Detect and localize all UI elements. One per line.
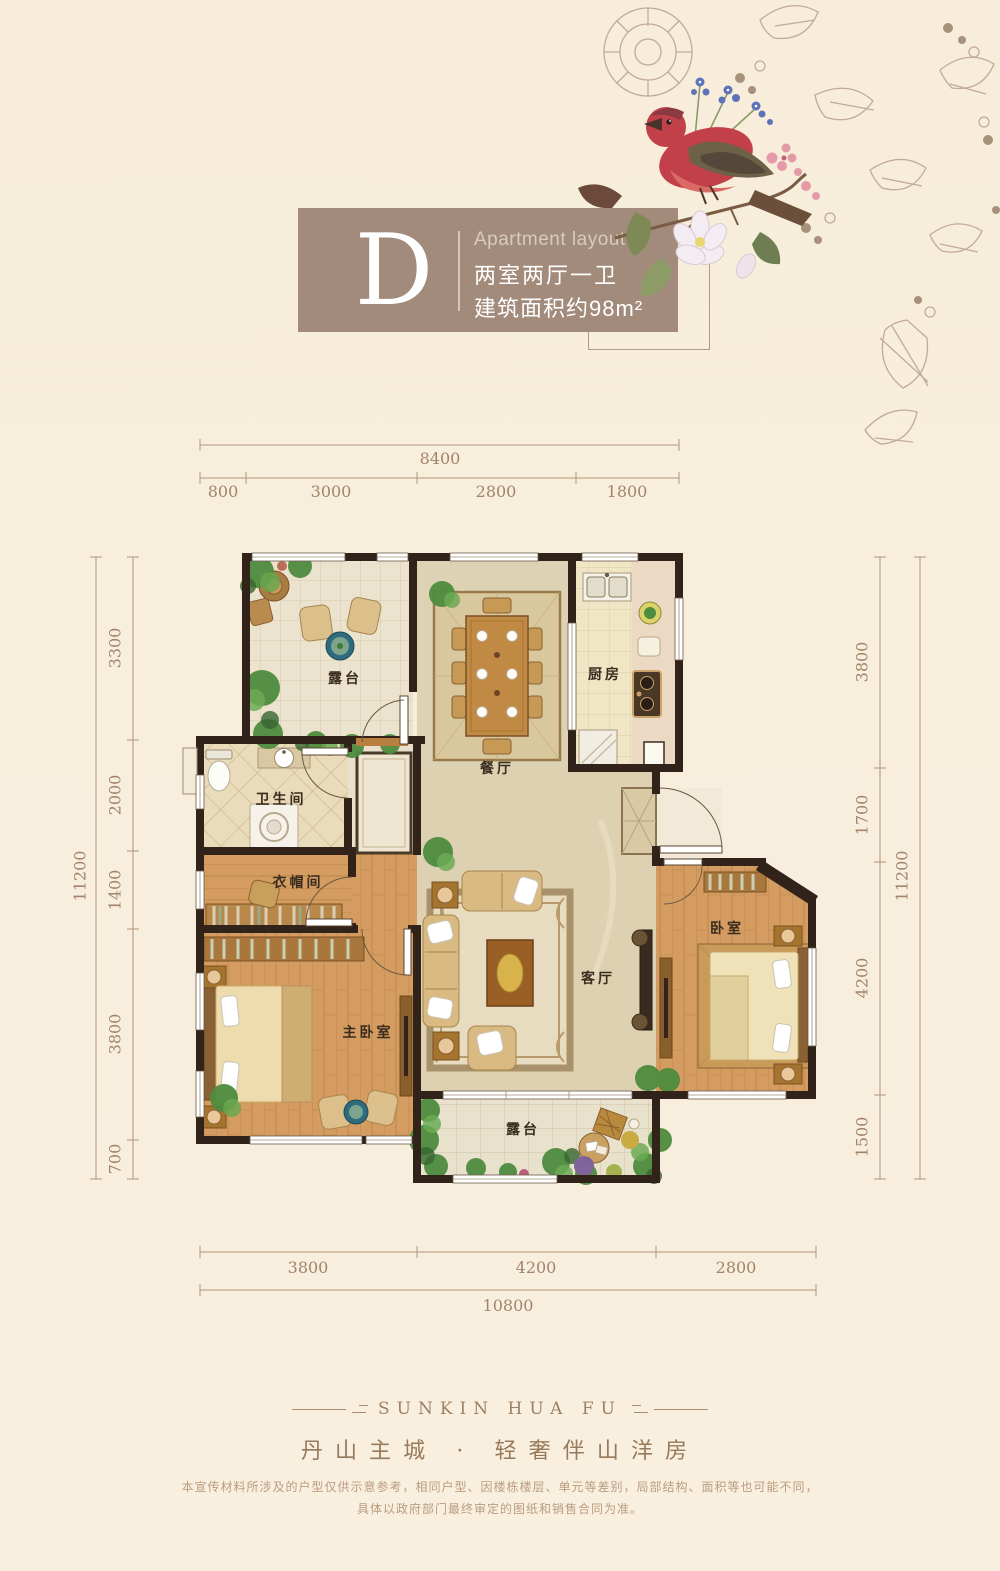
slogan: 丹山主城 · 轻奢伴山洋房 bbox=[0, 1433, 1000, 1465]
room-label-dining: 餐厅 bbox=[480, 758, 514, 778]
dim-top-total: 8400 bbox=[420, 449, 461, 468]
dim-bottom-total: 10800 bbox=[483, 1296, 534, 1315]
dim-top-seg: 2800 bbox=[476, 482, 517, 501]
dim-top-seg: 800 bbox=[208, 482, 239, 501]
dim-left-total: 11200 bbox=[71, 851, 90, 902]
dim-left-seg: 3300 bbox=[106, 628, 125, 669]
room-label-terrace-top: 露台 bbox=[328, 668, 362, 688]
room-label-living: 客厅 bbox=[581, 968, 615, 988]
flyer-page: D Apartment layout 两室两厅一卫 建筑面积约98m² bbox=[0, 0, 1000, 1571]
dim-right-total: 11200 bbox=[893, 851, 912, 902]
dim-bottom-seg: 3800 bbox=[288, 1258, 329, 1277]
bird-illustration bbox=[578, 78, 820, 297]
dim-right-seg: 1500 bbox=[853, 1117, 872, 1158]
room-label-terrace-bottom: 露台 bbox=[506, 1119, 540, 1139]
dim-bottom-seg: 4200 bbox=[516, 1258, 557, 1277]
room-label-bedroom: 卧室 bbox=[710, 918, 744, 938]
dim-left-seg: 2000 bbox=[106, 775, 125, 816]
room-label-cloakroom: 衣帽间 bbox=[273, 872, 324, 892]
dim-bottom-seg: 2800 bbox=[716, 1258, 757, 1277]
dim-right-seg: 1700 bbox=[853, 795, 872, 836]
dim-left-seg: 3800 bbox=[106, 1014, 125, 1055]
dining-set bbox=[434, 592, 560, 760]
ornament-left-icon bbox=[292, 1404, 368, 1414]
dim-right-seg: 4200 bbox=[853, 958, 872, 999]
decorative-art bbox=[560, 0, 1000, 520]
dim-left-seg: 1400 bbox=[106, 870, 125, 911]
disclaimer-line1: 本宣传材料所涉及的户型仅供示意参考，相同户型、因楼栋楼层、单元等差别，局部结构、… bbox=[0, 1478, 1000, 1495]
dim-left-seg: 700 bbox=[106, 1144, 125, 1175]
dim-top-seg: 3000 bbox=[311, 482, 352, 501]
brand-row: SUNKIN HUA FU bbox=[0, 1399, 1000, 1419]
hall-floor-frame bbox=[357, 753, 411, 853]
exterior-ledge bbox=[183, 748, 197, 794]
ornament-right-icon bbox=[632, 1404, 708, 1414]
dim-right-seg: 3800 bbox=[853, 642, 872, 683]
dim-top-seg: 1800 bbox=[607, 482, 648, 501]
disclaimer-line2: 具体以政府部门最终审定的图纸和销售合同为准。 bbox=[0, 1500, 1000, 1517]
room-label-master-bedroom: 主卧室 bbox=[343, 1022, 394, 1042]
room-label-kitchen: 厨房 bbox=[588, 664, 622, 684]
brand-name: SUNKIN HUA FU bbox=[378, 1399, 622, 1419]
room-label-bathroom: 卫生间 bbox=[256, 789, 307, 809]
